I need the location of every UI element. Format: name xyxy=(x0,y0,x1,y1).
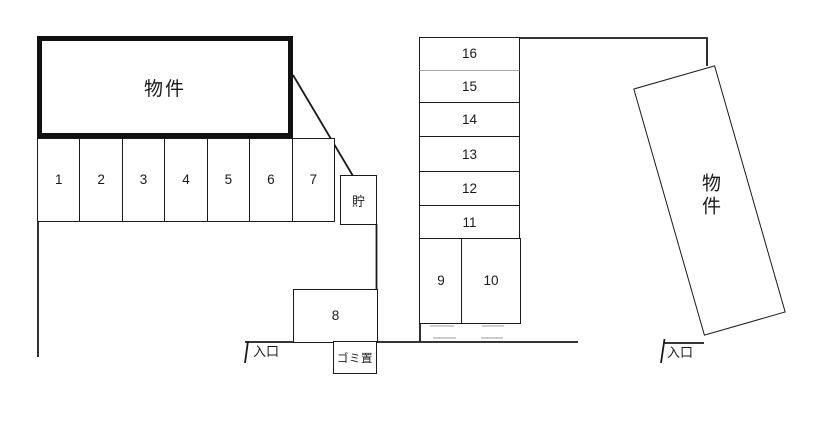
building-left: 物件 xyxy=(37,36,293,138)
parking-space-14: 14 xyxy=(419,102,520,139)
entrance-right-label: 入口 xyxy=(667,346,693,359)
garbage-label: ゴミ置 xyxy=(337,350,373,366)
building-right-label: 物件 xyxy=(697,173,721,233)
faint-artifact xyxy=(430,325,454,327)
parking-space-13: 13 xyxy=(419,136,520,173)
parking-space-3: 3 xyxy=(123,138,165,222)
entrance-left-tick xyxy=(245,341,248,363)
parking-space-11: 11 xyxy=(419,205,520,240)
parking-site-plan: 物件 1 2 3 4 5 6 7 貯 16 15 14 13 12 11 9 1… xyxy=(0,0,829,436)
storage-label: 貯 xyxy=(352,191,365,210)
parking-row: 1 2 3 4 5 6 7 xyxy=(37,138,335,222)
top-right-boundary-line xyxy=(520,38,707,66)
entrance-right-tick xyxy=(661,339,665,363)
faint-artifact xyxy=(481,337,503,339)
parking-space-10: 10 xyxy=(461,238,521,324)
faint-artifact xyxy=(482,325,504,327)
faint-artifact xyxy=(433,337,456,339)
parking-space-1: 1 xyxy=(37,138,80,222)
parking-space-5: 5 xyxy=(208,138,250,222)
parking-space-4: 4 xyxy=(165,138,207,222)
entrance-left-label: 入口 xyxy=(253,345,279,358)
garbage-area-box: ゴミ置 xyxy=(333,341,377,374)
parking-space-16: 16 xyxy=(419,37,520,70)
parking-space-2: 2 xyxy=(80,138,122,222)
parking-space-12: 12 xyxy=(419,171,520,207)
parking-space-9: 9 xyxy=(419,238,463,324)
parking-space-8: 8 xyxy=(293,289,378,343)
parking-space-15: 15 xyxy=(419,70,520,104)
building-left-label: 物件 xyxy=(144,74,186,101)
parking-space-6: 6 xyxy=(250,138,292,222)
storage-box: 貯 xyxy=(340,175,377,225)
parking-space-7: 7 xyxy=(293,138,335,222)
